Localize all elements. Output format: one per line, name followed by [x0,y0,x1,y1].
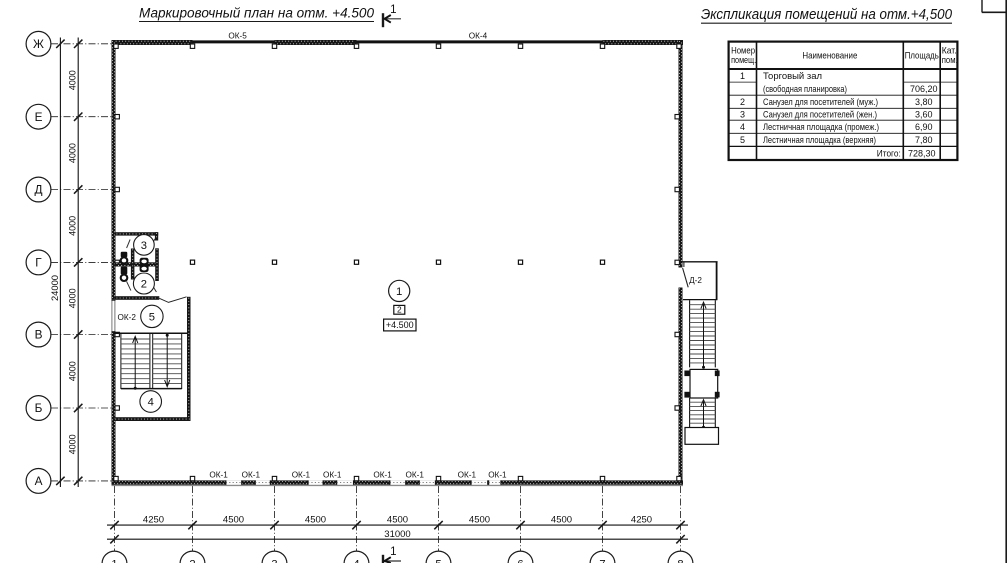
svg-text:Маркировочный план на отм. +4.: Маркировочный план на отм. +4.500 [139,6,374,22]
svg-text:Номер: Номер [731,46,755,56]
svg-text:ОК-1: ОК-1 [458,470,477,479]
svg-text:4000: 4000 [68,70,78,90]
svg-text:1: 1 [390,546,396,558]
svg-text:5: 5 [740,135,745,145]
svg-text:пом.: пом. [942,55,958,65]
svg-text:Итого:: Итого: [877,149,901,159]
svg-text:Ж: Ж [33,37,44,51]
svg-text:3: 3 [740,110,745,120]
svg-text:2: 2 [189,559,195,564]
svg-text:3: 3 [141,240,147,252]
svg-text:5: 5 [435,559,441,564]
svg-text:Площадь: Площадь [905,51,939,61]
svg-text:2: 2 [141,279,147,291]
svg-text:4000: 4000 [68,143,78,163]
svg-text:помещ.: помещ. [731,55,756,65]
svg-text:1: 1 [390,4,396,16]
svg-text:7: 7 [599,559,605,564]
svg-text:Лестничная площадка (промеж.): Лестничная площадка (промеж.) [763,122,879,132]
svg-text:7,80: 7,80 [915,135,933,145]
svg-text:ОК-1: ОК-1 [323,470,342,479]
svg-text:6,90: 6,90 [915,122,933,132]
svg-text:3,60: 3,60 [915,110,933,120]
svg-text:31000: 31000 [384,529,410,540]
svg-text:(свободная планировка): (свободная планировка) [763,84,847,94]
svg-text:ОК-4: ОК-4 [469,32,488,41]
svg-text:4000: 4000 [68,288,78,308]
svg-text:6: 6 [517,559,523,564]
svg-text:Санузел для посетителей (муж.): Санузел для посетителей (муж.) [763,97,878,107]
svg-text:ОК-2: ОК-2 [117,313,136,322]
svg-text:+4.500: +4.500 [386,320,414,330]
svg-text:Торговый зал: Торговый зал [763,71,822,81]
svg-text:Лестничная площадка (верхняя): Лестничная площадка (верхняя) [763,135,876,145]
svg-text:1: 1 [111,559,117,564]
svg-text:3,80: 3,80 [915,97,933,107]
svg-text:Г: Г [35,256,42,270]
svg-text:Наименование: Наименование [802,51,857,61]
svg-text:Экспликация помещений на отм.+: Экспликация помещений на отм.+4,500 [701,7,952,23]
svg-text:2: 2 [397,304,402,314]
svg-text:4500: 4500 [551,514,572,525]
svg-text:Санузел для посетителей (жен.): Санузел для посетителей (жен.) [763,110,877,120]
svg-text:4500: 4500 [223,514,244,525]
svg-text:ОК-1: ОК-1 [488,470,507,479]
svg-text:Д-2: Д-2 [689,276,702,285]
svg-text:ОК-1: ОК-1 [373,470,392,479]
svg-text:ОК-1: ОК-1 [209,470,228,479]
svg-text:24000: 24000 [49,275,60,301]
svg-text:4500: 4500 [469,514,490,525]
svg-text:4: 4 [148,397,154,409]
svg-text:5: 5 [149,312,155,324]
svg-text:4000: 4000 [68,434,78,454]
svg-text:ОК-1: ОК-1 [292,470,311,479]
svg-text:4: 4 [740,122,745,132]
svg-text:Б: Б [35,401,43,415]
svg-text:8: 8 [677,559,683,564]
svg-text:4250: 4250 [631,514,652,525]
svg-text:В: В [35,328,43,342]
svg-text:706,20: 706,20 [910,84,938,94]
svg-text:Д: Д [35,183,43,197]
svg-text:728,30: 728,30 [908,149,936,159]
svg-text:4500: 4500 [305,514,326,525]
svg-text:1: 1 [396,286,402,298]
svg-text:ОК-1: ОК-1 [242,470,261,479]
svg-text:А: А [35,474,43,488]
svg-text:4: 4 [353,559,359,564]
svg-text:1: 1 [740,71,745,81]
svg-text:ОК-1: ОК-1 [405,470,424,479]
svg-text:3: 3 [271,559,277,564]
svg-text:4500: 4500 [387,514,408,525]
svg-text:Кат.: Кат. [942,46,957,56]
svg-text:ОК-5: ОК-5 [228,32,247,41]
svg-text:4250: 4250 [143,514,164,525]
svg-text:Е: Е [35,110,43,124]
svg-text:2: 2 [740,97,745,107]
svg-text:4000: 4000 [68,361,78,381]
svg-text:4000: 4000 [68,216,78,236]
